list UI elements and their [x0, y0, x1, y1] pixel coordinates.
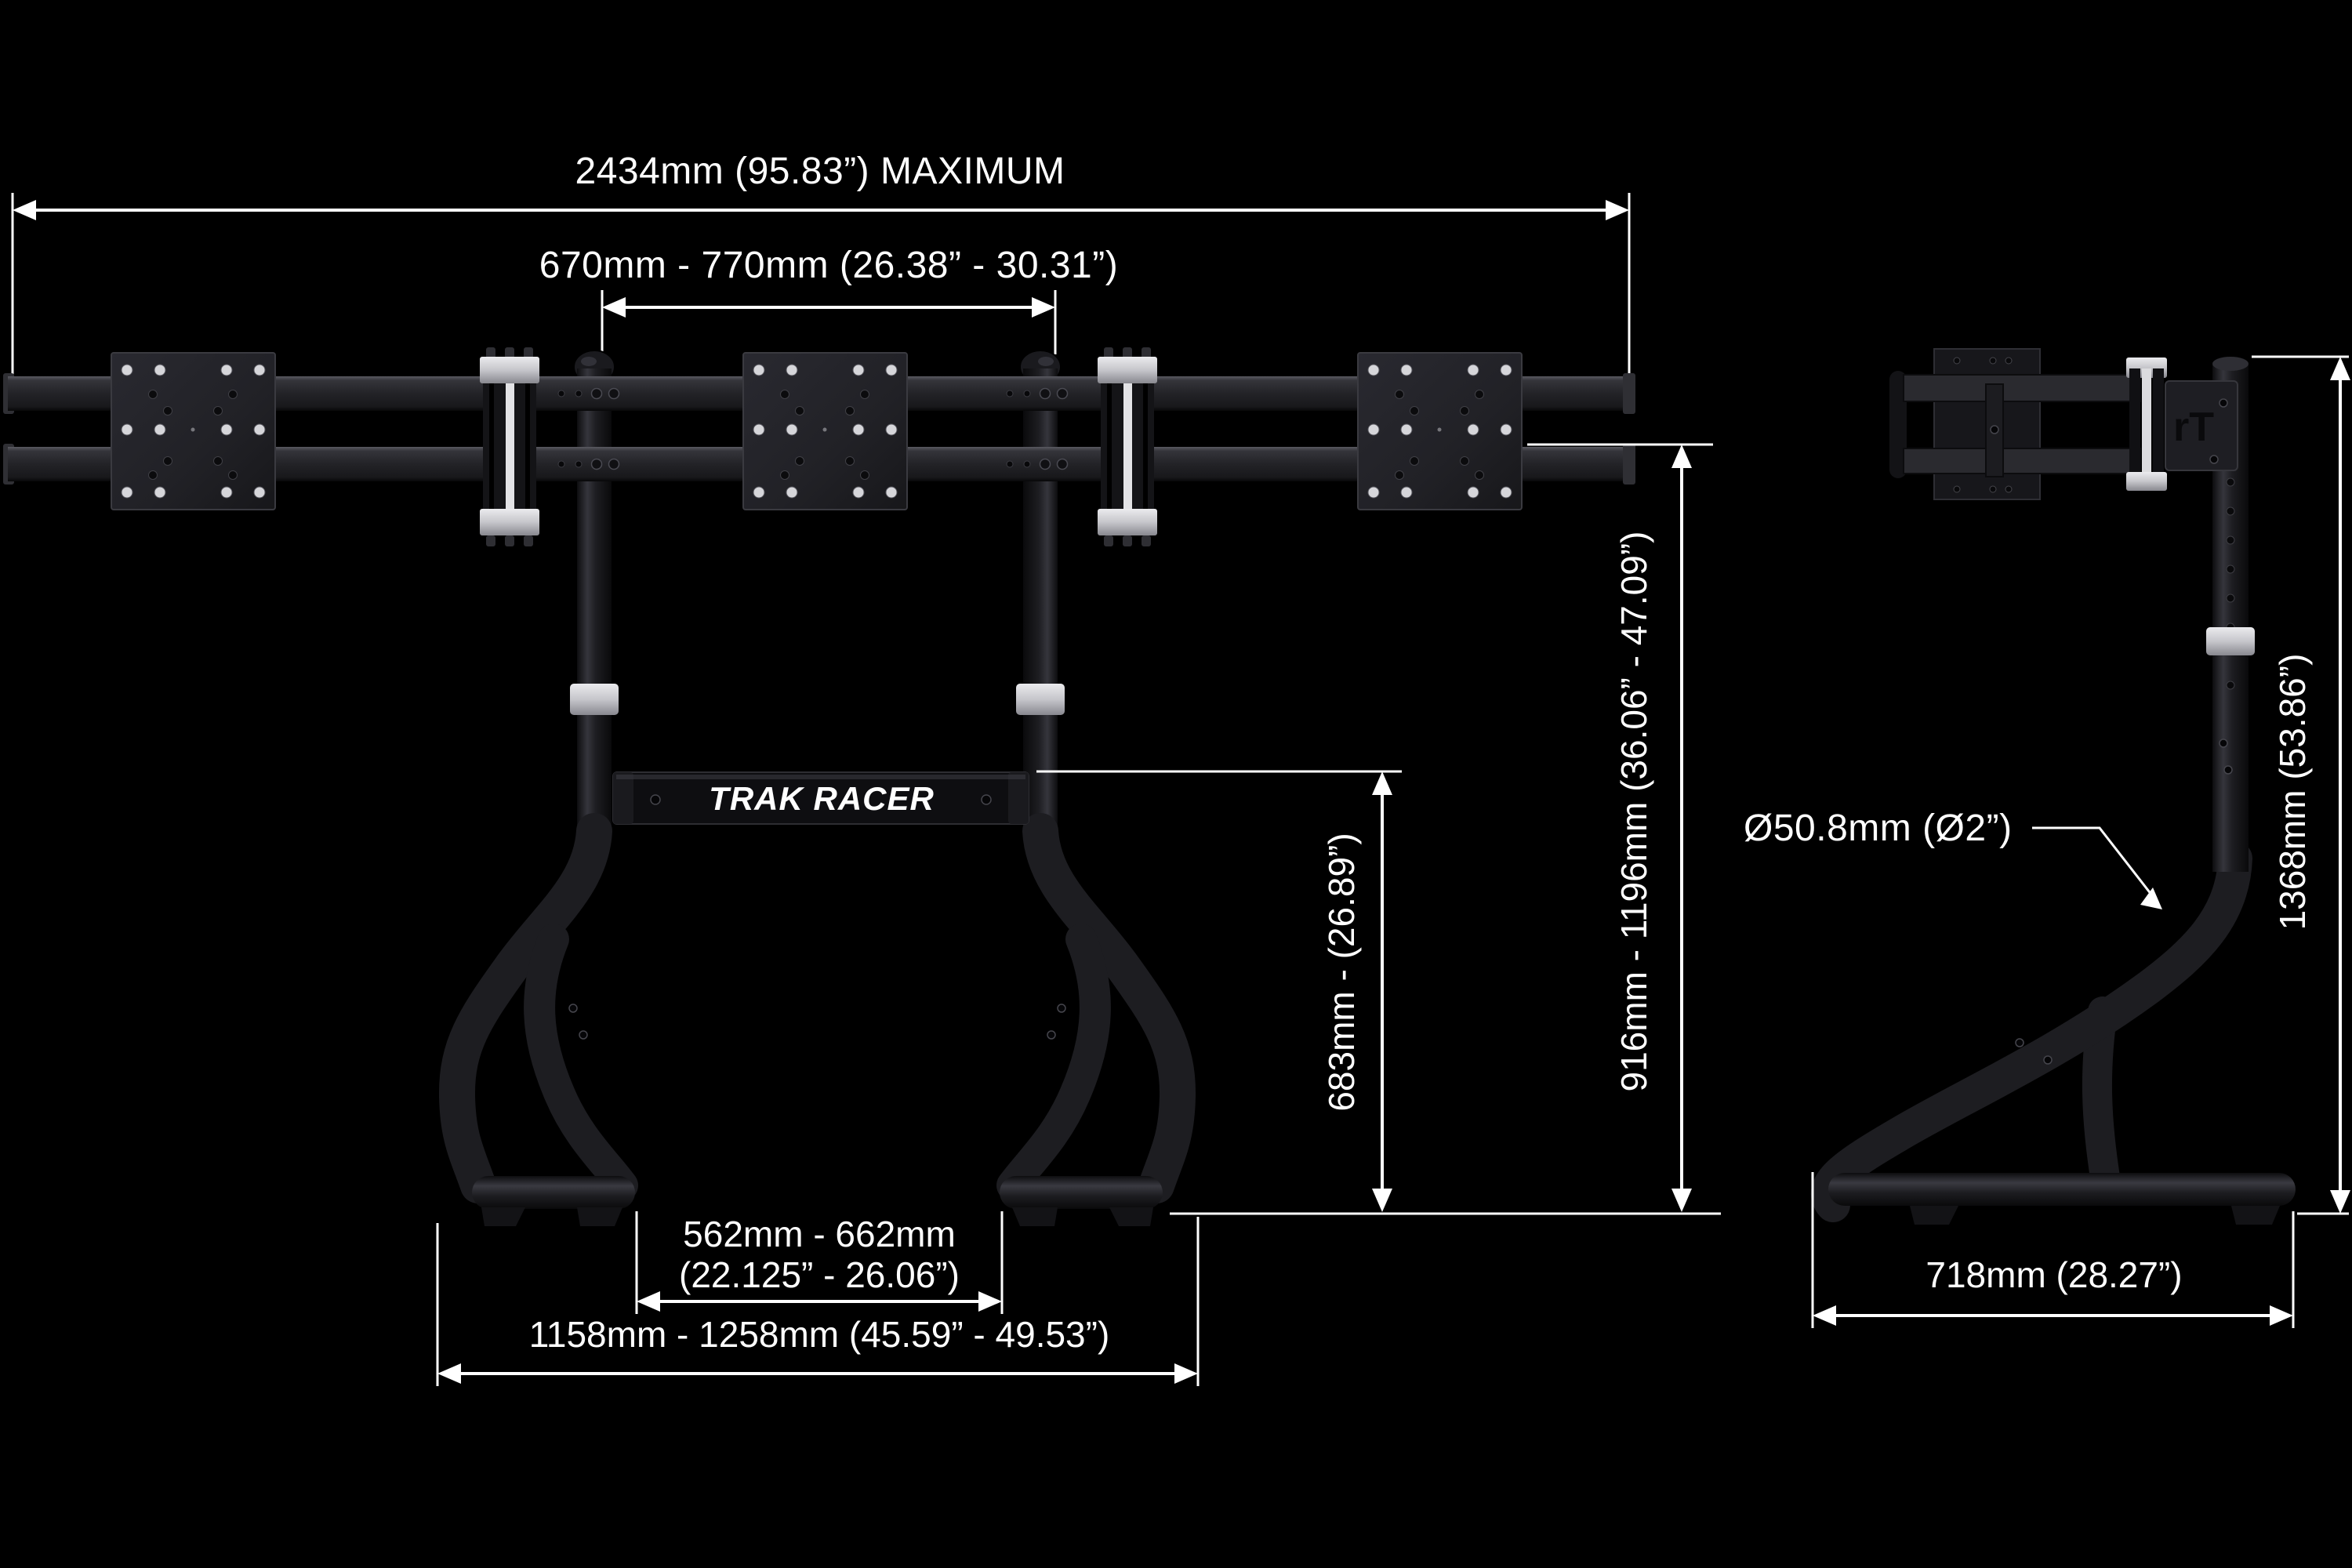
background: [0, 0, 2352, 1568]
side-foot: [2231, 1206, 2280, 1225]
rail-end-cap: [1623, 444, 1635, 485]
dim-crossbar-height-label: 683mm - (26.89”): [1321, 833, 1362, 1111]
dim-base-depth-label: 718mm (28.27”): [1926, 1254, 2182, 1295]
tube-diameter-text: Ø50.8mm (Ø2”): [1744, 808, 2013, 849]
diagram-stage: 2434mm (95.83”) MAXIMUM 670mm - 770mm (2…: [0, 0, 2352, 1568]
vesa-plate-left: [111, 353, 275, 510]
dim-mount-spacing-label: 670mm - 770mm (26.38” - 30.31”): [539, 245, 1118, 286]
side-bracket-logo: rT: [2173, 405, 2214, 450]
dimension-diagram: 2434mm (95.83”) MAXIMUM 670mm - 770mm (2…: [0, 0, 2352, 1568]
arm-hinge: [2126, 358, 2167, 491]
arm-upper: [1904, 375, 2140, 401]
vesa-plate-center: [743, 353, 907, 510]
crossbar: TRAK RACER: [613, 772, 1029, 824]
dim-feet-outer-label: 1158mm - 1258mm (45.59” - 49.53”): [529, 1314, 1110, 1355]
arm-lower: [1904, 448, 2140, 474]
rail-end-cap: [1623, 373, 1635, 414]
crossbar-logo: TRAK RACER: [709, 780, 935, 817]
clamp-right: [1098, 347, 1157, 546]
dim-rail-height-label: 916mm - 1196mm (36.06” - 47.09”): [1613, 532, 1654, 1092]
dim-feet-inner-label2: (22.125” - 26.06”): [679, 1254, 960, 1295]
dim-feet-inner-label1: 562mm - 662mm: [683, 1214, 956, 1254]
side-collar: [2206, 627, 2255, 655]
tube-screw: [2016, 1039, 2024, 1047]
post-bracket: rT: [2165, 381, 2238, 470]
tube-screw: [2044, 1056, 2052, 1064]
dim-total-height-label: 1368mm (53.86”): [2272, 654, 2313, 931]
vesa-plate-right: [1358, 353, 1522, 510]
clamp-left: [480, 347, 539, 546]
dim-width-max-label: 2434mm (95.83”) MAXIMUM: [575, 151, 1065, 192]
